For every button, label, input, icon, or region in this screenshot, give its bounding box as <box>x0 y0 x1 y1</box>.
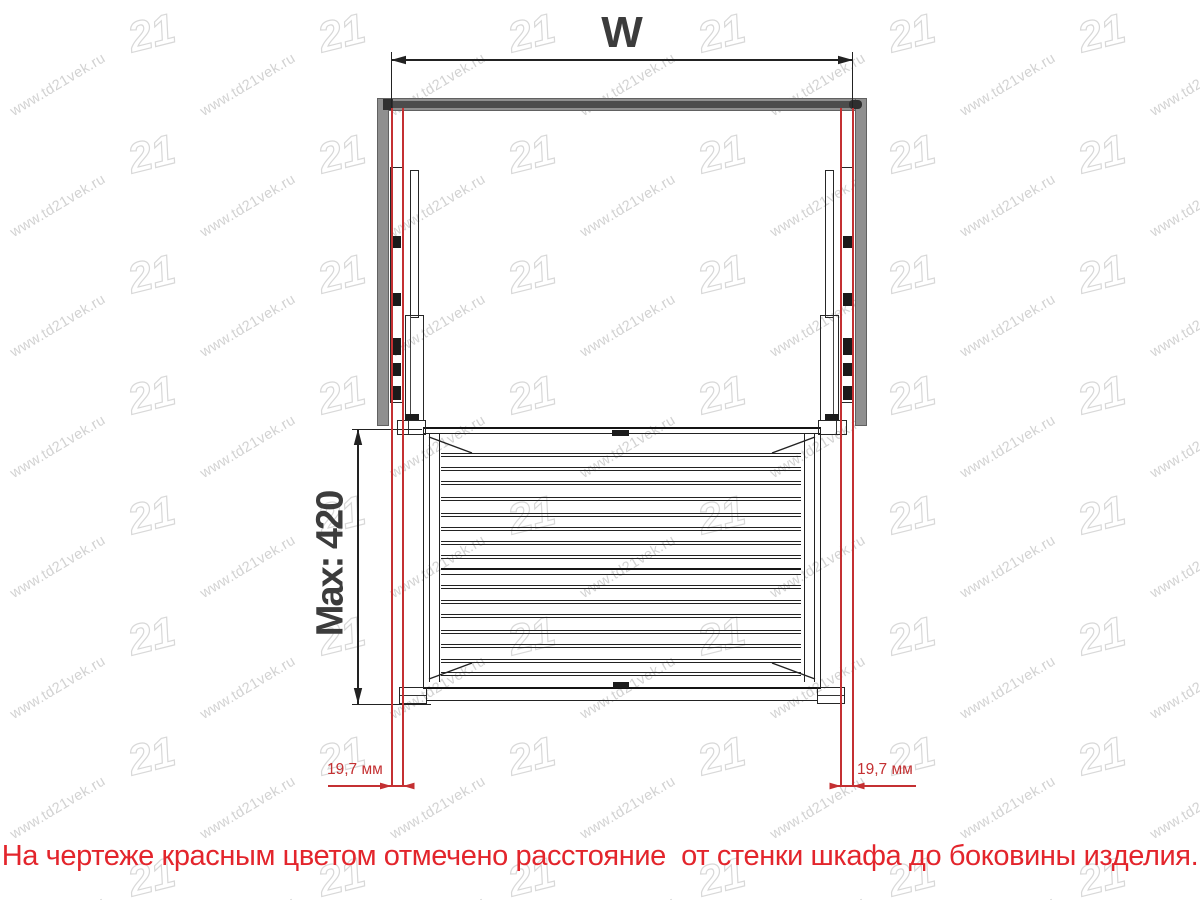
arrowheads-and-corner-braces <box>0 0 1200 900</box>
note-caption: На чертеже красным цветом отмечено расст… <box>0 840 1200 873</box>
technical-drawing-page: www.td21vek.ru21www.td21vek.ru21www.td21… <box>0 0 1200 900</box>
drawing-layer: W Max: 420 19,7 мм 19,7 мм <box>0 0 1200 900</box>
